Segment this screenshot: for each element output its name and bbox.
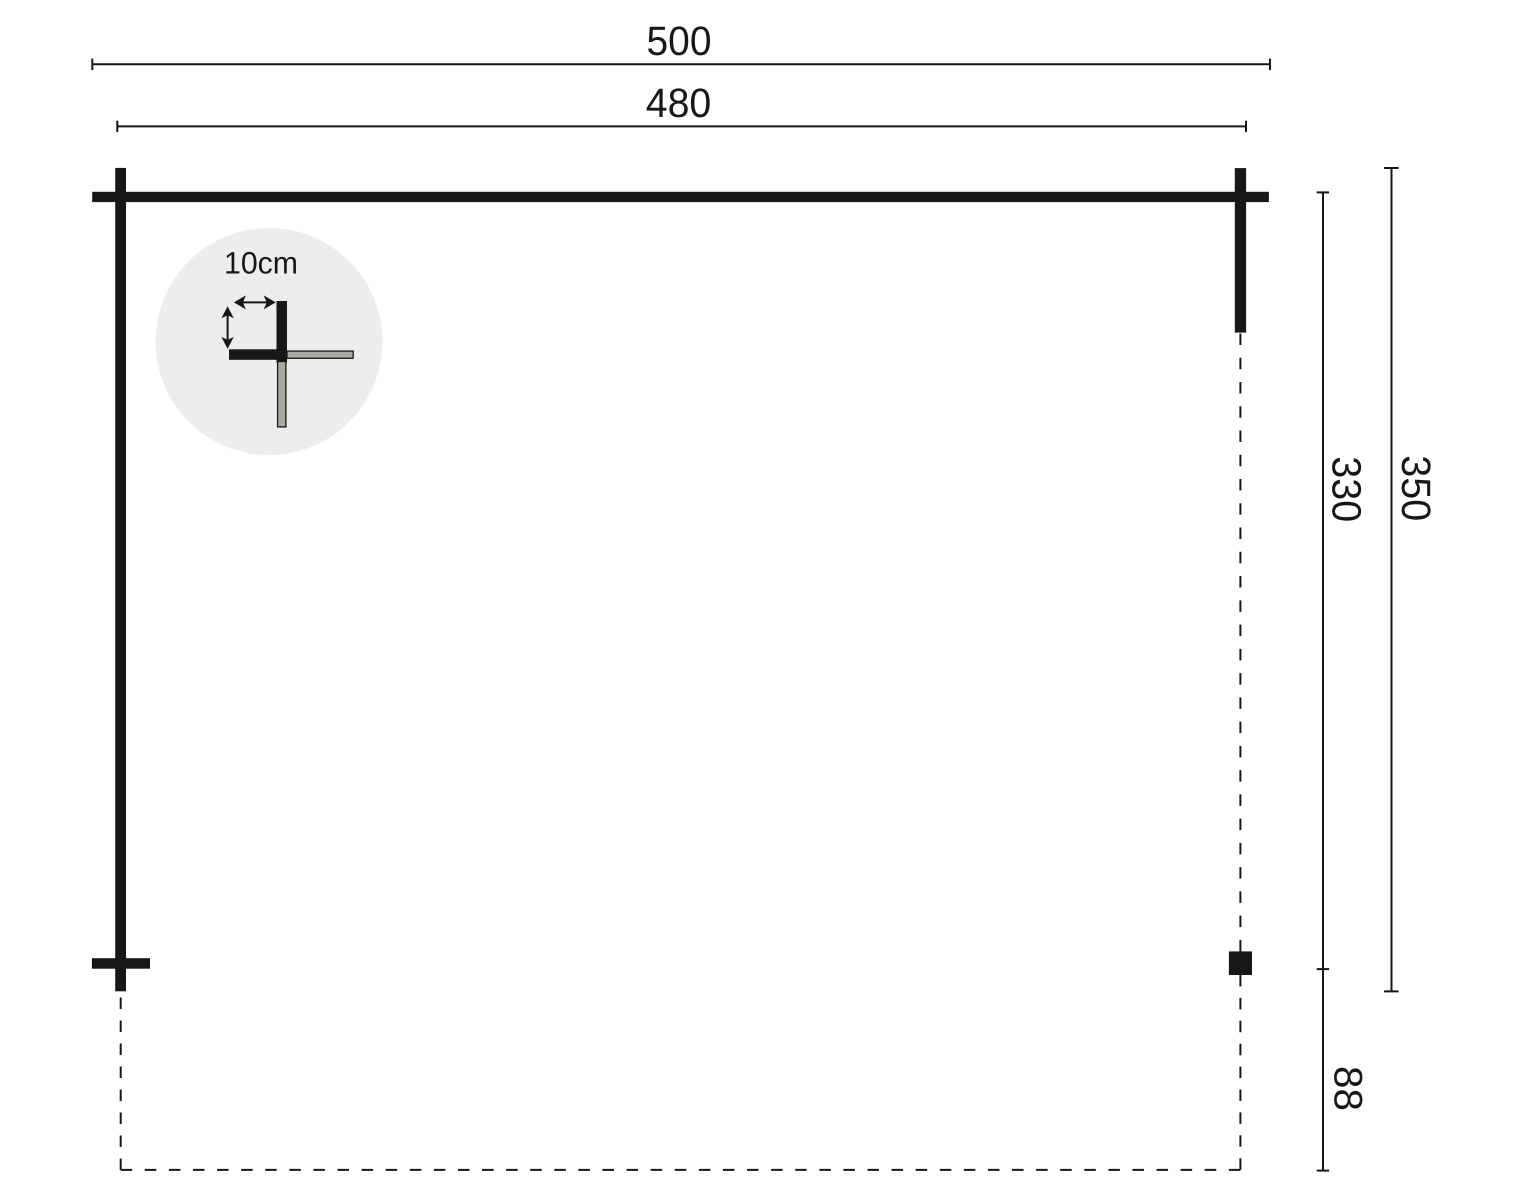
svg-text:480: 480 — [646, 80, 712, 126]
svg-text:330: 330 — [1324, 456, 1370, 522]
svg-text:10cm: 10cm — [224, 246, 298, 281]
svg-text:350: 350 — [1393, 455, 1439, 521]
svg-text:500: 500 — [647, 18, 712, 64]
svg-text:88: 88 — [1326, 1066, 1370, 1111]
